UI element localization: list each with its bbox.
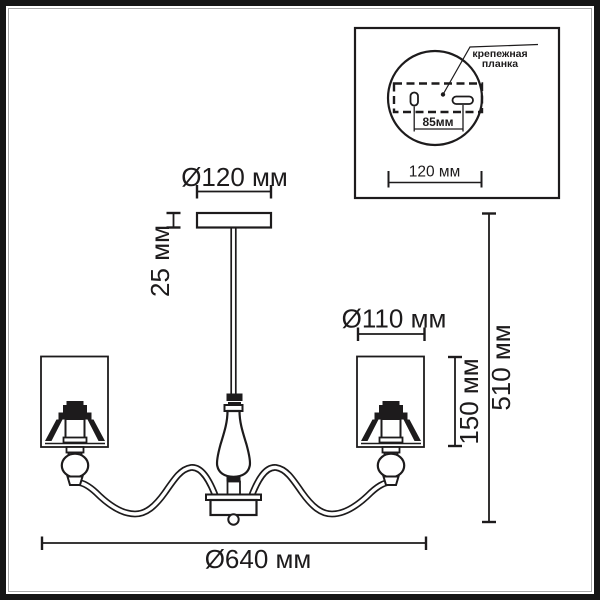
- technical-drawing-page: крепежная планка 85мм 120 мм: [0, 0, 600, 600]
- vase-body: [217, 411, 250, 477]
- column-cylinder: [228, 482, 241, 495]
- lamp-right: [357, 357, 424, 486]
- suspension-rod: [231, 227, 236, 396]
- mount-slot-left: [411, 93, 419, 106]
- ceiling-mount-inset: крепежная планка 85мм 120 мм: [355, 28, 559, 198]
- dim-canopy-diameter-label: Ø120 мм: [181, 162, 288, 192]
- hub-finial-ball: [228, 514, 238, 524]
- dim-canopy-height-label: 25 мм: [145, 225, 175, 297]
- chandelier-dimension-diagram: крепежная планка 85мм 120 мм: [0, 0, 600, 600]
- dim-shade-diameter-label: Ø110 мм: [342, 304, 447, 334]
- dimension-lines: [42, 185, 496, 550]
- dim-shade-height-label: 150 мм: [454, 358, 484, 444]
- lamp-left: [41, 357, 108, 486]
- dim-total-diameter-label: Ø640 мм: [205, 544, 312, 574]
- dim-total-height-label: 510 мм: [486, 324, 516, 410]
- dim-plate-diameter-label: 120 мм: [409, 164, 460, 181]
- arm-left-outline: [79, 467, 218, 514]
- mount-slot-right: [453, 97, 474, 105]
- ceiling-canopy: [197, 213, 271, 228]
- hub-body: [211, 500, 257, 515]
- central-column: [206, 405, 261, 525]
- dim-slot-spacing-label: 85мм: [422, 115, 453, 129]
- mounting-bracket-label-line2: планка: [482, 58, 518, 70]
- arm-right-outline: [250, 467, 389, 514]
